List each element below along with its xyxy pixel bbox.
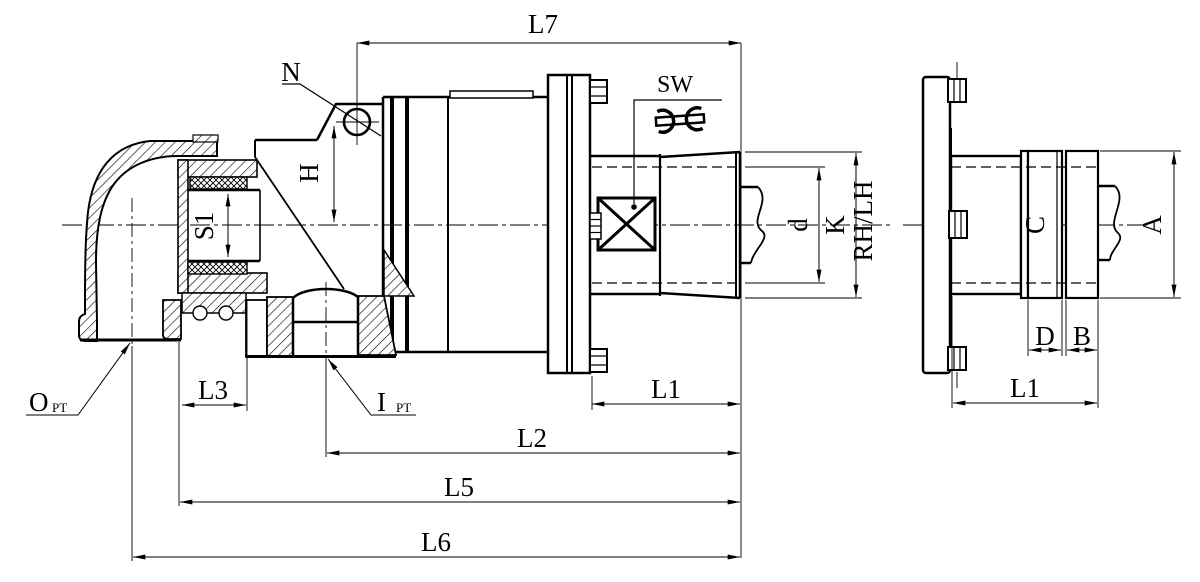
top-plate [450,91,533,98]
dim-label-b: B [1073,321,1091,351]
dim-label-dsmall: D [1035,321,1055,351]
thread-hand-label: RH/LH [848,181,878,262]
dim-label-l7: L7 [528,9,558,39]
neck-notch-1 [193,306,207,320]
dim-label-l6: L6 [421,527,451,557]
side-bolt-middle [949,211,967,238]
side-bolt-bottom [948,347,966,388]
sw-label: SW [657,72,693,98]
elbow-outlet-right-wall [163,300,181,339]
thread-relief-ridges [590,213,601,239]
neck [182,293,246,313]
dim-label-l1-side: L1 [1010,373,1040,403]
seal-bottom [188,262,247,274]
dim-label-i: I [377,387,386,417]
flange-bolt-top [590,80,607,103]
taper-thread-bottom [660,293,740,298]
side-bolt-top [948,62,966,102]
dim-label-i-sub: PT [396,400,411,415]
dim-label-o-sub: PT [52,400,67,415]
nut-bottom-section [178,273,267,293]
nut-left-face [178,160,188,293]
dim-label-n: N [281,57,301,87]
dim-label-d: d [783,218,813,232]
drawing-canvas: SW [0,0,1200,582]
body-casting [182,91,548,357]
port-wall-left [267,297,293,356]
nut-top-section [178,160,257,177]
taper-thread-top [660,152,740,157]
corner-web [384,250,414,296]
sw-callout: SW [631,72,722,210]
dim-label-h: H [294,163,324,183]
dim-label-s1: S1 [189,212,219,241]
dim-label-o: O [29,387,49,417]
hex-flats [598,198,655,250]
neck-notch-2 [219,306,233,320]
dim-label-l1: L1 [651,374,681,404]
dim-label-k: K [820,215,850,235]
flange-bolt-bottom [590,349,607,372]
side-shaft-break [1098,186,1120,260]
elbow-stub-block [193,135,218,142]
dim-label-a: A [1137,215,1167,235]
rotary-joint-drawing: SW [0,0,1200,582]
seal-top [190,177,247,189]
dim-label-l2: L2 [517,423,547,453]
dim-label-l5: L5 [444,472,474,502]
dim-label-l3: L3 [198,375,228,405]
wrench-icon [655,107,704,132]
side-collar-b [1066,151,1098,298]
foot-face [246,300,267,357]
side-flange-plate [923,77,950,373]
dim-label-c: C [1020,216,1050,234]
